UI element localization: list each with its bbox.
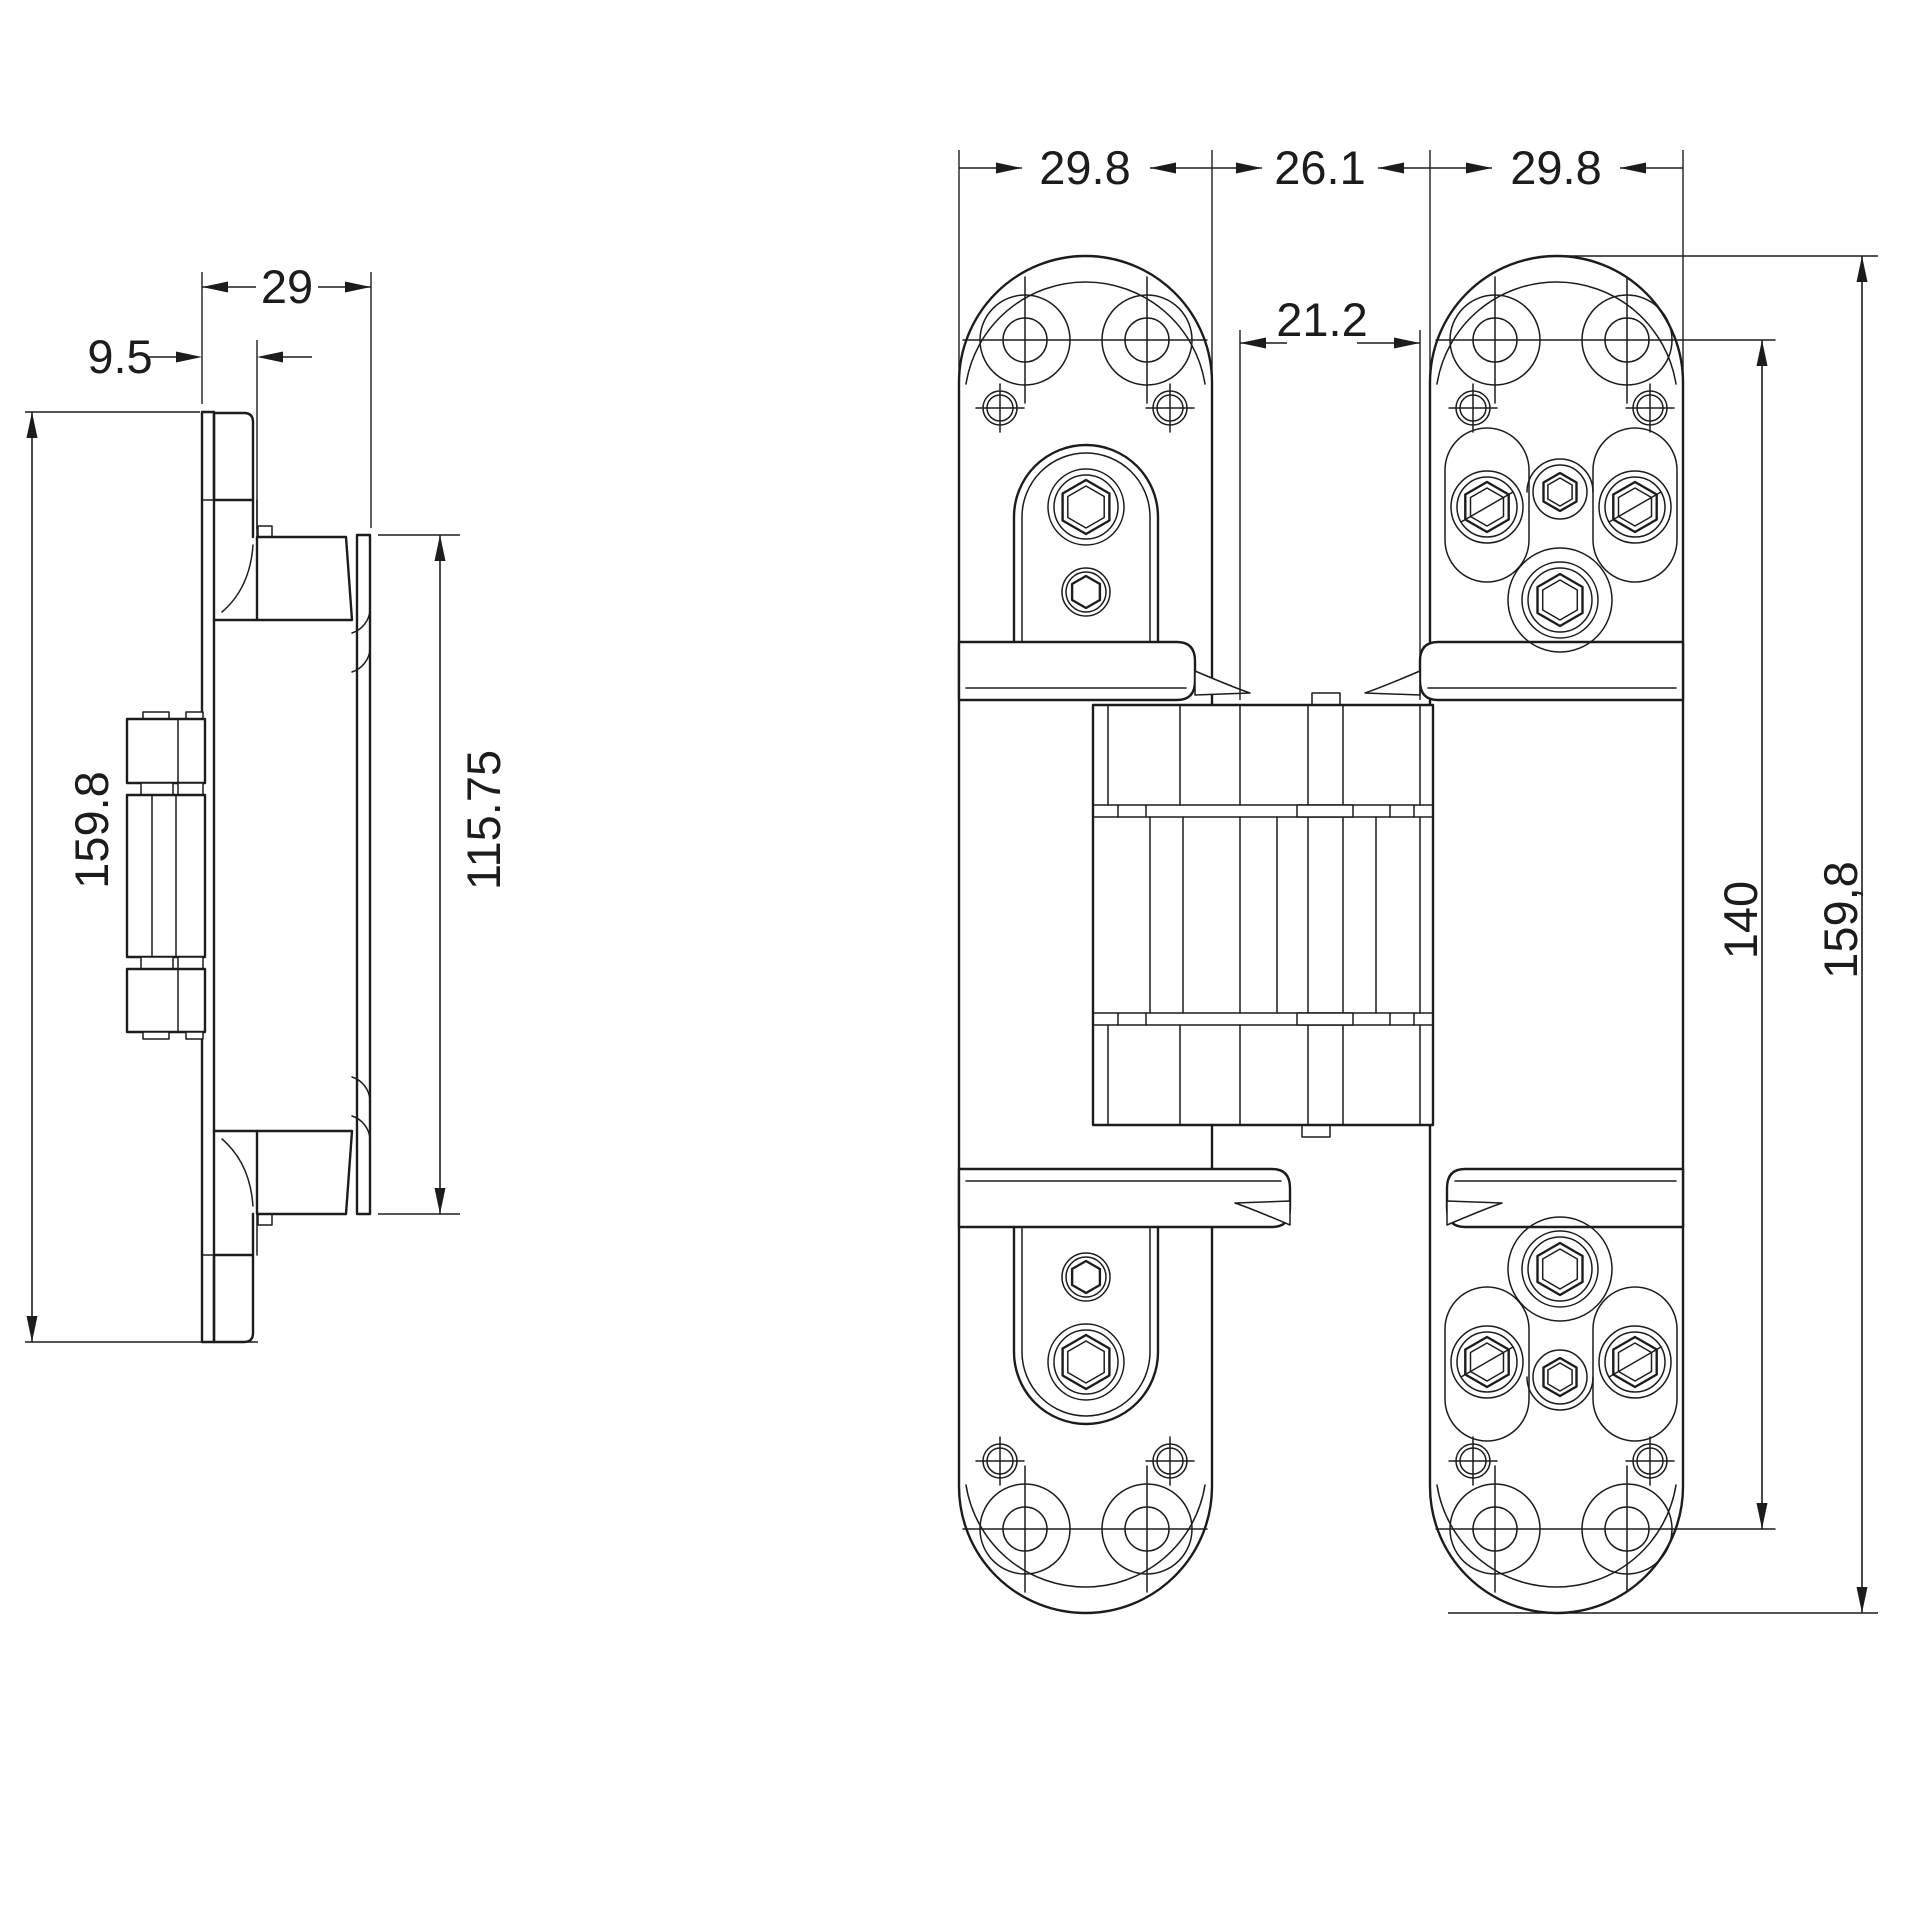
dim-front-left-leaf-width: 29.8 bbox=[1039, 141, 1130, 194]
dim-front-center-gap: 26.1 bbox=[1274, 141, 1365, 194]
side-knuckle-barrels bbox=[127, 712, 205, 1039]
dim-front-body-width: 21.2 bbox=[1276, 293, 1367, 346]
dim-front-right-leaf-width: 29.8 bbox=[1510, 141, 1601, 194]
dim-front-overall-height: 159,8 bbox=[1814, 861, 1867, 979]
dim-side-overall-height: 159.8 bbox=[65, 771, 118, 889]
page: 29 9.5 159.8 115.75 bbox=[0, 0, 1920, 1920]
dim-side-leaf-thickness: 9.5 bbox=[87, 330, 152, 383]
hinge-technical-drawing: 29 9.5 159.8 115.75 bbox=[0, 0, 1920, 1920]
dim-side-fitting-height: 115.75 bbox=[457, 750, 510, 890]
front-hinge-body bbox=[1093, 693, 1433, 1137]
dim-side-total-depth: 29 bbox=[261, 260, 313, 313]
dim-front-screw-span: 140 bbox=[1714, 881, 1767, 959]
